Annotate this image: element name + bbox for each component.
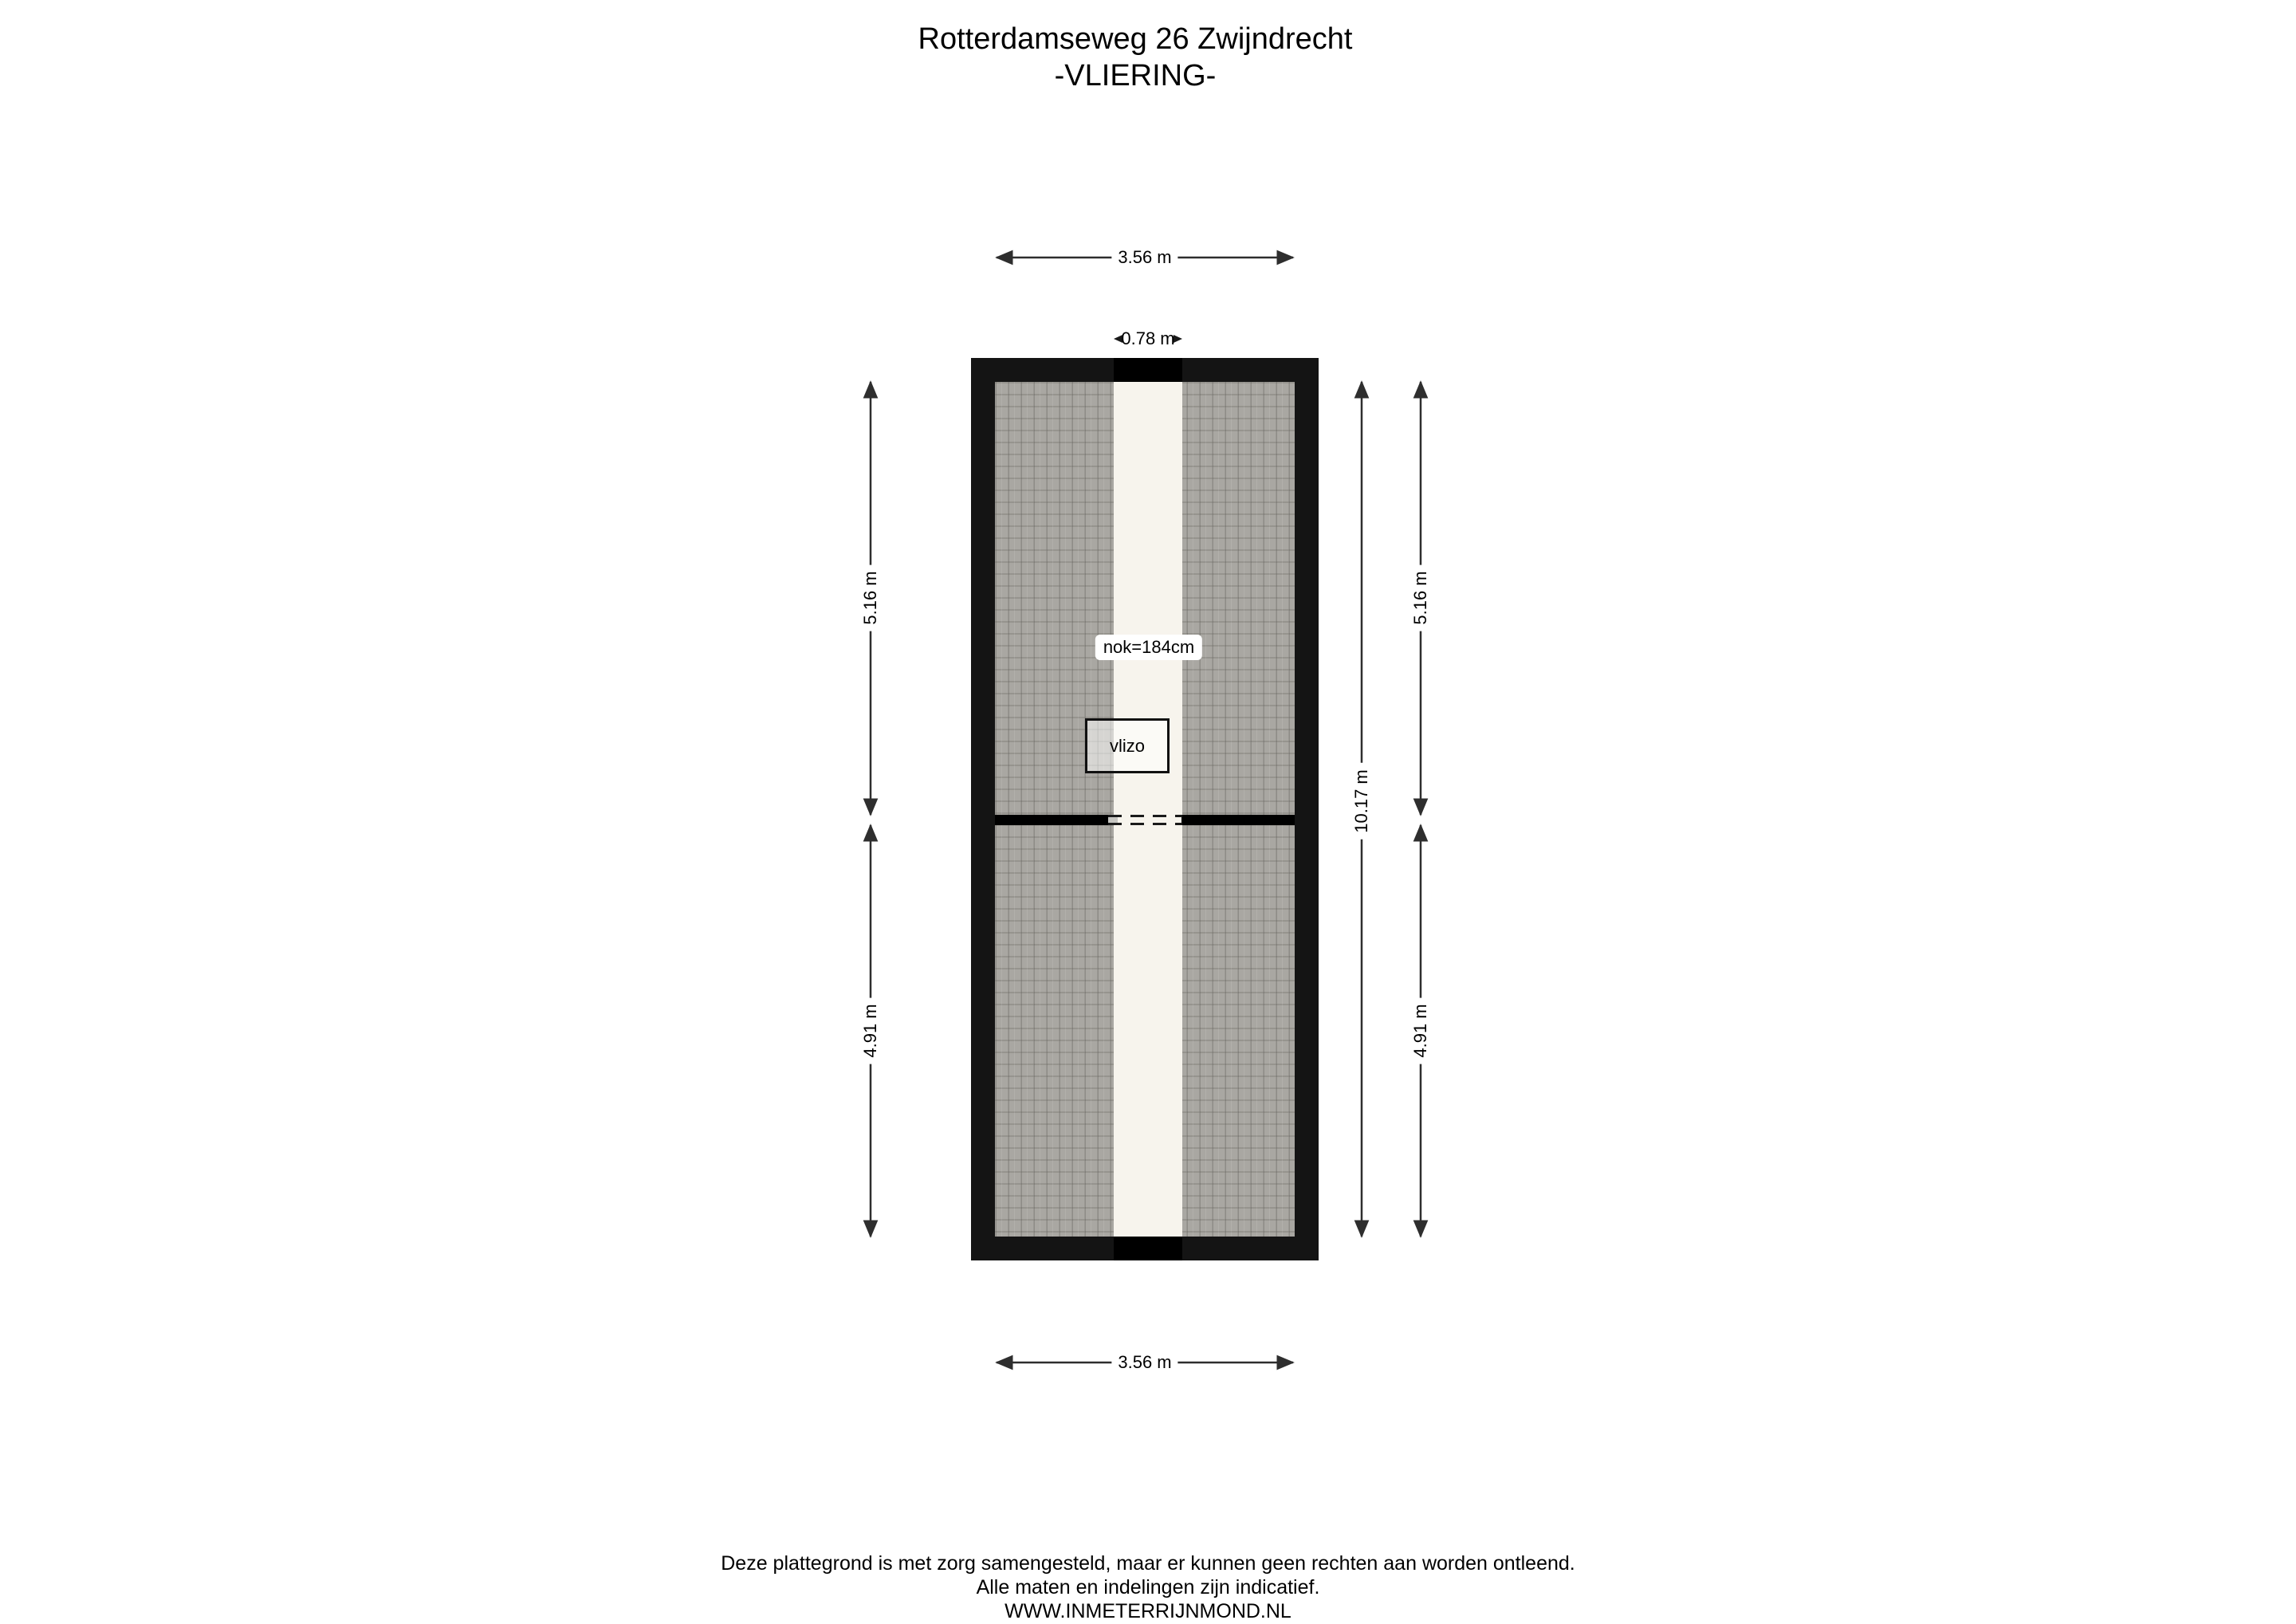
dim-right-total-label: 10.17 m	[1350, 763, 1373, 840]
floorplan-page: Rotterdamseweg 26 Zwijndrecht -VLIERING-…	[0, 0, 2296, 1624]
dim-right-lower-label: 4.91 m	[1409, 997, 1432, 1064]
dim-right-upper-label: 5.16 m	[1409, 564, 1432, 631]
dim-strip-width-label: 0.78 m	[1115, 328, 1181, 350]
dim-left-upper-label: 5.16 m	[859, 564, 882, 631]
dim-top-width-label: 3.56 m	[1111, 246, 1177, 269]
dim-left-lower-label: 4.91 m	[859, 997, 882, 1064]
ridge-height-label: nok=184cm	[1095, 635, 1202, 660]
dim-bottom-width-label: 3.56 m	[1111, 1351, 1177, 1374]
dimension-lines-layer	[0, 0, 2296, 1624]
